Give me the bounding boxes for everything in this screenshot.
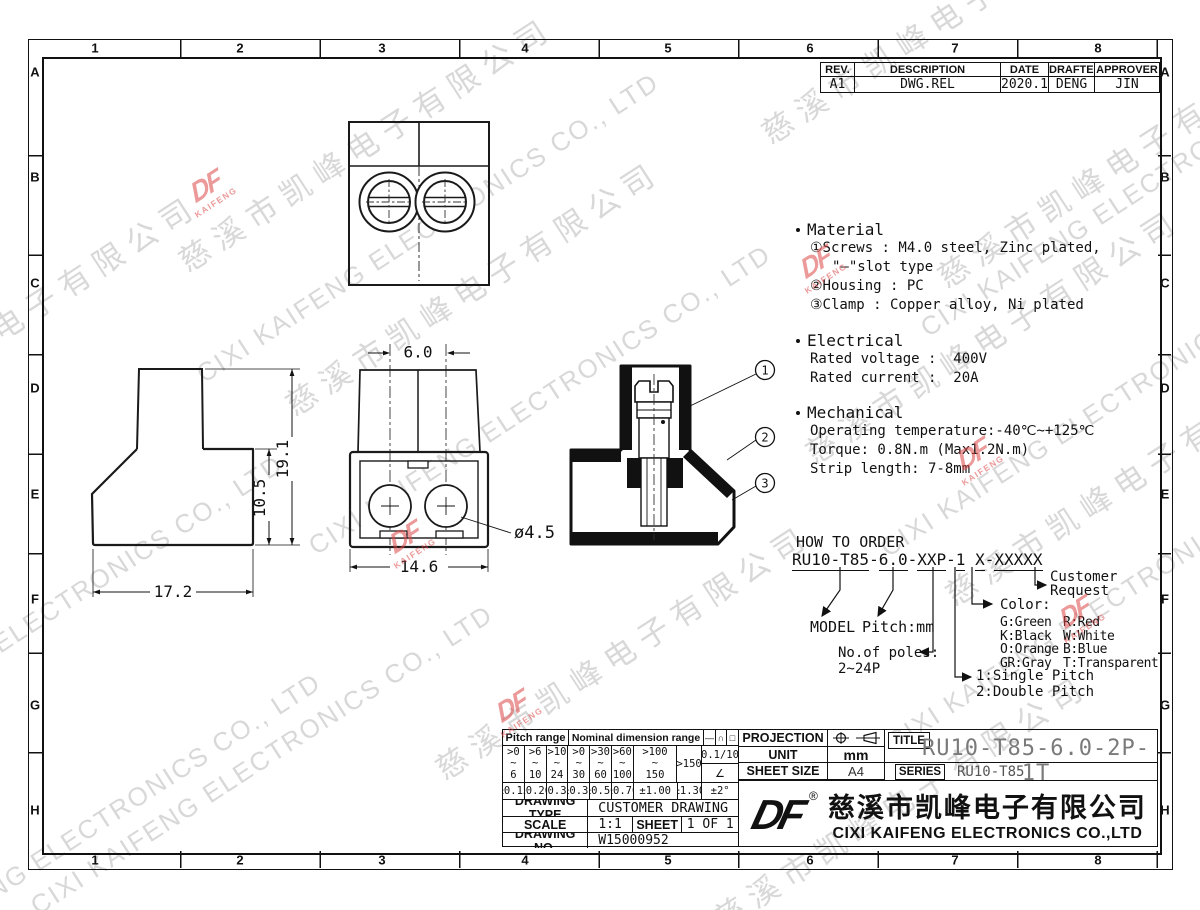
mechanical-section-title: Mechanical — [796, 403, 903, 422]
material-section-title: Material — [796, 220, 884, 239]
zone-row-label: H — [1160, 803, 1169, 818]
zone-row-label: G — [30, 698, 40, 713]
zone-col-label: 6 — [806, 853, 813, 868]
zone-col-label: 2 — [236, 853, 243, 868]
zone-row-label: A — [1160, 65, 1169, 80]
zone-row-label: C — [1160, 276, 1169, 291]
order-poles-label: No.of poles: — [838, 645, 939, 661]
section-view-drawing: 1 2 3 — [555, 350, 793, 568]
tol-cell: ±0.15 — [503, 783, 525, 800]
drawing-type-value: CUSTOMER DRAWING — [588, 800, 738, 817]
scale-value: 1:1 — [588, 817, 633, 833]
unit-label: UNIT — [739, 747, 828, 763]
zone-row-label: F — [1161, 592, 1169, 607]
order-type2-label: 2:Double Pitch — [976, 684, 1094, 700]
order-color-label: Color: — [1000, 597, 1051, 613]
zone-col-label: 3 — [378, 41, 385, 56]
top-view-drawing — [348, 121, 490, 287]
company-names: 慈溪市凯峰电子有限公司 CIXI KAIFENG ELECTRONICS CO.… — [818, 786, 1157, 843]
dim-hole-dia: ø4.5 — [514, 523, 555, 543]
zone-col-label: 3 — [378, 853, 385, 868]
color-option: G:Green — [1000, 616, 1063, 630]
symbol-arc: ∩ — [716, 730, 727, 746]
mechanical-notes: Operating temperature:-40℃~+125℃ Torque:… — [810, 422, 1094, 479]
zone-col-label: 1 — [91, 41, 98, 56]
color-option: O:Orange — [1000, 643, 1063, 657]
third-angle-projection-icon — [830, 731, 882, 745]
range-cell: >30 ~ 60 — [590, 746, 612, 783]
symbol-straightness: — — [704, 730, 716, 746]
zone-col-label: 5 — [664, 41, 671, 56]
order-color-options: G:GreenR:Red K:BlackW:White O:OrangeB:Bl… — [1000, 616, 1158, 670]
rev-value: 2020.10/31 — [1001, 77, 1049, 92]
bullet-icon — [796, 228, 800, 232]
dim-depth: 17.2 — [154, 582, 193, 601]
company-name-en: CIXI KAIFENG ELECTRONICS CO.,LTD — [818, 825, 1157, 843]
range-cell: >10 ~ 24 — [547, 746, 569, 783]
zone-col-label: 4 — [521, 853, 528, 868]
angle-icon: ∠ — [702, 764, 738, 783]
range-cell: >60 ~ 100 — [612, 746, 634, 783]
color-option: K:Black — [1000, 630, 1063, 644]
material-title-text: Material — [807, 220, 884, 239]
color-option: T:Transparent — [1063, 657, 1158, 671]
zone-row-label: D — [30, 381, 39, 396]
zone-row-label: H — [30, 803, 39, 818]
rev-value: DENG — [1049, 77, 1095, 92]
bullet-icon — [796, 411, 800, 415]
color-option: GR:Gray — [1000, 657, 1063, 671]
dim-overall-height: 19.1 — [273, 440, 292, 479]
zone-col-label: 4 — [521, 41, 528, 56]
note-line: Rated voltage : 400V — [810, 350, 987, 369]
color-option: R:Red — [1063, 616, 1158, 630]
order-pitch-label: Pitch:mm — [862, 618, 934, 636]
electrical-title-text: Electrical — [807, 331, 903, 350]
tolerance-table: Pitch range Nominal dimension range — ∩ … — [502, 729, 739, 847]
zone-col-label: 1 — [91, 853, 98, 868]
kaifeng-logo: DF — [747, 791, 807, 839]
note-line: ③Clamp : Copper alloy, Ni plated — [810, 296, 1101, 315]
mechanical-title-text: Mechanical — [807, 403, 903, 422]
dim-overall-width: 14.6 — [400, 557, 439, 576]
zone-row-label: B — [1160, 170, 1169, 185]
drawing-type-label: DRAWING TYPE — [503, 800, 588, 817]
rev-value: A1 — [821, 77, 855, 92]
callout-balloon-3: 3 — [761, 477, 768, 491]
zone-row-label: C — [30, 276, 39, 291]
color-option: B:Blue — [1063, 643, 1158, 657]
sheet-label: SHEET — [633, 817, 683, 833]
drawing-title: RU10-T85-6.0-2P-1T — [885, 736, 1157, 786]
how-to-order-title: HOW TO ORDER — [796, 533, 904, 551]
flatness-tolerance: 0.1/10 — [702, 746, 738, 764]
callout-balloon-1: 1 — [761, 364, 768, 378]
zone-col-label: 8 — [1094, 41, 1101, 56]
company-name-cn: 慈溪市凯峰电子有限公司 — [818, 786, 1157, 825]
drawing-sheet: 慈溪市凯峰电子有限公司 CIXI KAIFENG ELECTRONICS CO.… — [0, 0, 1200, 910]
symbol-square: □ — [727, 730, 738, 746]
tol-cell: ±0.30 — [568, 783, 590, 800]
drawing-no-value: W15000952 — [588, 833, 738, 848]
note-line: ②Housing : PC — [810, 277, 1101, 296]
color-option: W:White — [1063, 630, 1158, 644]
revision-header-row: REV. DESCRIPTION DATE DRAFTER APPROVER — [821, 63, 1159, 77]
note-line: Strip length: 7-8mm — [810, 460, 1094, 479]
range-cell: >0 ~ 6 — [503, 746, 525, 783]
order-model-label: MODEL — [810, 618, 855, 636]
nominal-range-header: Nominal dimension range — [569, 730, 704, 746]
revision-table: REV. DESCRIPTION DATE DRAFTER APPROVER A… — [820, 62, 1160, 93]
content-layer: 1 2 3 4 5 6 7 8 1 2 3 4 5 6 7 8 A B C D … — [0, 0, 1200, 910]
zone-col-label: 6 — [806, 41, 813, 56]
front-view-drawing: 6.0 ø4.5 14.6 — [330, 340, 560, 590]
tol-cell: ±0.70 — [612, 783, 634, 800]
note-line: Rated current : 20A — [810, 369, 987, 388]
rev-value: DWG.REL — [855, 77, 1001, 92]
electrical-notes: Rated voltage : 400V Rated current : 20A — [810, 350, 987, 388]
tol-cell-over: ±1.30 — [678, 783, 703, 800]
note-line: Operating temperature:-40℃~+125℃ — [810, 422, 1094, 441]
company-logo: DF ® — [739, 791, 818, 839]
tol-cell: ±0.50 — [590, 783, 612, 800]
callout-balloon-2: 2 — [761, 431, 768, 445]
zone-col-label: 7 — [951, 853, 958, 868]
company-block: DF ® 慈溪市凯峰电子有限公司 CIXI KAIFENG ELECTRONIC… — [739, 780, 1157, 848]
rev-header: REV. — [821, 63, 855, 77]
side-view-drawing: 10.5 19.1 17.2 — [55, 345, 325, 613]
zone-row-label: E — [31, 487, 40, 502]
electrical-section-title: Electrical — [796, 331, 903, 350]
rev-header: DRAFTER — [1049, 63, 1095, 77]
zone-row-label: D — [1160, 381, 1169, 396]
range-cell: >6 ~ 10 — [525, 746, 547, 783]
note-line: Torque: 0.8N.m (Max1.2N.m) — [810, 441, 1094, 460]
rev-value: JIN — [1095, 77, 1159, 92]
note-line: ①Screws : M4.0 steel, Zinc plated, — [810, 239, 1101, 258]
zone-row-label: F — [31, 592, 39, 607]
range-cell: >100 ~ 150 — [634, 746, 678, 783]
tol-cell: ±1.00 — [634, 783, 678, 800]
zone-col-label: 7 — [951, 41, 958, 56]
scale-label: SCALE — [503, 817, 588, 833]
tol-cell: ±0.30 — [547, 783, 569, 800]
sheet-value: 1 OF 1 — [682, 817, 738, 833]
pitch-range-header: Pitch range — [503, 730, 569, 746]
ruler-ticks-top — [42, 39, 1158, 57]
material-notes: ①Screws : M4.0 steel, Zinc plated, "—"sl… — [810, 239, 1101, 315]
range-cell-over: >150 — [677, 746, 702, 783]
zone-row-label: A — [30, 65, 39, 80]
tol-cell: ±0.20 — [525, 783, 547, 800]
angle-tolerance: ±2° — [702, 783, 738, 800]
zone-col-label: 5 — [664, 853, 671, 868]
drawing-no-label: DRAWING NO. — [503, 833, 588, 848]
unit-value: mm — [828, 747, 885, 763]
sheet-size-value: A4 — [828, 763, 885, 780]
sheet-size-label: SHEET SIZE — [739, 763, 828, 780]
dim-pitch: 6.0 — [404, 343, 433, 362]
rev-header: DESCRIPTION — [855, 63, 1001, 77]
zone-col-label: 8 — [1094, 853, 1101, 868]
range-cell: >0 ~ 30 — [568, 746, 590, 783]
note-line: "—"slot type — [810, 258, 1101, 277]
zone-row-label: E — [1161, 487, 1170, 502]
projection-label: PROJECTION — [739, 730, 828, 747]
registered-mark: ® — [809, 789, 818, 803]
revision-value-row: A1 DWG.REL 2020.10/31 DENG JIN — [821, 77, 1159, 92]
zone-col-label: 2 — [236, 41, 243, 56]
order-customer-label2: Request — [1050, 583, 1109, 599]
zone-row-label: B — [30, 170, 39, 185]
title-block: PROJECTION UNIT — [739, 729, 1158, 847]
zone-row-label: G — [1160, 698, 1170, 713]
rev-header: DATE — [1001, 63, 1049, 77]
title-cell: TITLE RU10-T85-6.0-2P-1T — [885, 730, 1157, 763]
bullet-icon — [796, 339, 800, 343]
dim-body-height: 10.5 — [250, 479, 269, 518]
projection-symbol-cell — [828, 730, 885, 747]
order-poles-value: 2~24P — [838, 661, 880, 677]
rev-header: APPROVER — [1095, 63, 1159, 77]
